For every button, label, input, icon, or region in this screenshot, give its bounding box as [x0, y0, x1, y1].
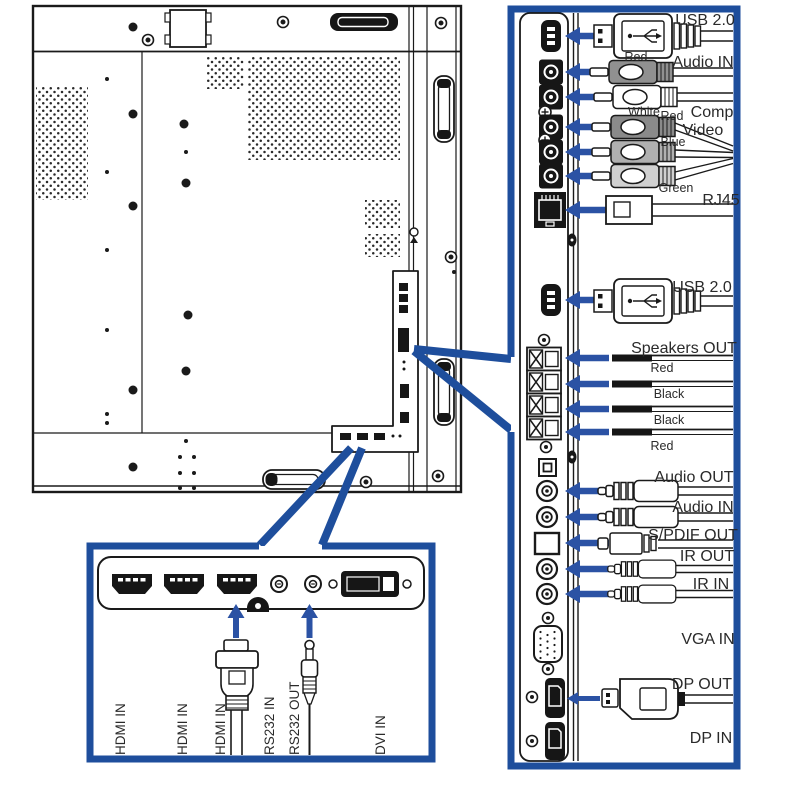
audio-in-jack-icon [537, 507, 557, 527]
handle-right-top [434, 76, 454, 142]
rs232-out-label: RS232 OUT [287, 681, 302, 755]
audio-in-jack-label: Audio IN [672, 499, 733, 516]
speaker-terminal-icon [527, 335, 561, 453]
screw-icon [433, 471, 444, 482]
spk-wire-label: Black [654, 387, 685, 401]
screw-icon [278, 17, 289, 28]
audio-red-label: Red [625, 50, 648, 64]
diagram-svg: USB 2.0 Red Audio IN White Red Comp Vide… [0, 0, 786, 786]
vga-in-label: VGA IN [681, 631, 734, 648]
hdmi1-label: HDMI IN [113, 703, 128, 755]
audio-out-jack-icon [537, 481, 557, 501]
rj45-port-icon [534, 192, 566, 228]
hdmi-port-icon [217, 574, 257, 594]
ir-in-label: IR IN [693, 576, 729, 593]
rs232-in-jack-icon [271, 576, 287, 592]
audio-out-label: Audio OUT [654, 469, 733, 486]
square-port-icon [539, 459, 556, 476]
comp-label: Comp [691, 104, 734, 121]
vent-grid [36, 86, 88, 200]
bottom-connector-callout: HDMI IN HDMI IN HDMI IN RS232 IN RS232 O… [90, 546, 432, 759]
hdmi-port-icon [164, 574, 204, 594]
side-jack-icon [568, 451, 577, 464]
spk-wire-label: Red [651, 361, 674, 375]
rear-connections-diagram: USB 2.0 Red Audio IN White Red Comp Vide… [0, 0, 786, 786]
rca-port-icon [539, 140, 563, 165]
vent-grid [365, 234, 400, 257]
hdmi-plug-icon [216, 651, 258, 668]
vent-grid [207, 56, 244, 89]
screw-icon [436, 18, 447, 29]
dvi-port-icon [329, 571, 411, 597]
hdmi-port-icon [112, 574, 152, 594]
dp-out-label: DP OUT [672, 676, 732, 693]
spdif-port-icon [535, 533, 559, 554]
optical-plug-icon [598, 538, 608, 549]
comp-green-label: Green [659, 181, 694, 195]
side-jack-icon [568, 234, 577, 247]
rj45-label: RJ45 [702, 192, 739, 209]
audio-white-label: White [628, 105, 660, 119]
spk-wire-label: Red [651, 439, 674, 453]
rs232-out-jack-icon [305, 576, 321, 592]
carry-handle-top [330, 13, 398, 31]
usb-top-label: USB 2.0 [675, 12, 735, 29]
ir-out-label: IR OUT [680, 548, 734, 565]
display-rear-view [33, 6, 461, 492]
spk-wire-label: Black [654, 413, 685, 427]
vent-grid [365, 200, 400, 228]
rca-port-icon [539, 60, 563, 85]
usb-port-icon [541, 20, 561, 52]
video-label: Video [683, 122, 724, 139]
trs-tip-icon [305, 641, 314, 650]
audio-in-label: Audio IN [672, 54, 733, 71]
hdmi2-label: HDMI IN [175, 703, 190, 755]
comp-blue-label: Blue [660, 135, 685, 149]
usb-port-icon [541, 284, 561, 316]
speakers-out-label: Speakers OUT [631, 340, 737, 357]
vent-grid [248, 56, 400, 160]
ir-in-jack-icon [537, 584, 557, 604]
spdif-out-label: S/PDIF OUT [648, 527, 738, 544]
comp-red-label: Red [661, 109, 684, 123]
screw-icon [143, 35, 154, 46]
screw-hole [129, 23, 138, 32]
screw-icon [361, 477, 372, 488]
side-connector-callout: USB 2.0 Red Audio IN White Red Comp Vide… [511, 9, 740, 766]
dvi-in-label: DVI IN [373, 715, 388, 755]
hdmi3-label: HDMI IN [213, 703, 228, 755]
ir-out-jack-icon [537, 559, 557, 579]
dp-in-label: DP IN [690, 730, 732, 747]
screw-icon [446, 252, 457, 263]
rca-port-icon [539, 164, 563, 189]
wall-mount-bracket [165, 10, 211, 47]
usb-bottom-label: USB 2.0 [672, 279, 732, 296]
rs232-in-label: RS232 IN [262, 696, 277, 755]
